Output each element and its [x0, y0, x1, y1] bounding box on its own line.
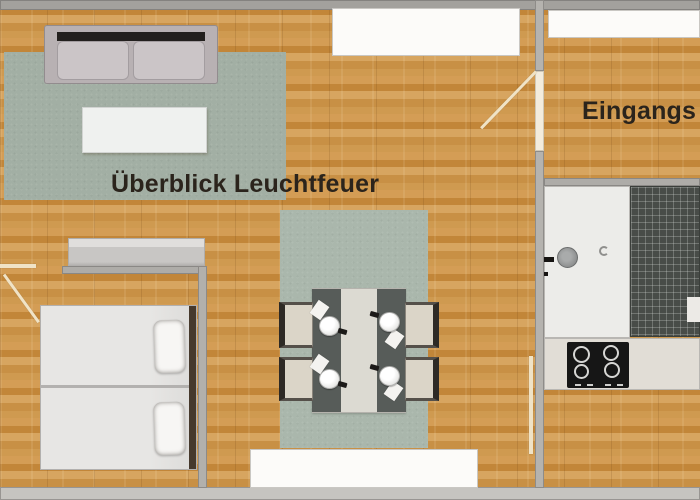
cooktop-knob	[587, 384, 593, 386]
sideboard	[68, 238, 205, 268]
door-threshold-entrance	[535, 71, 544, 151]
burner-icon	[574, 364, 589, 379]
door-leaf-kitchen	[529, 356, 533, 454]
window-top	[332, 8, 520, 56]
cooktop	[567, 342, 629, 388]
plate	[379, 312, 400, 332]
bed-headboard	[189, 306, 196, 469]
sofa	[44, 25, 218, 84]
kitchen-sink	[557, 247, 578, 268]
wall-sleeping-side	[198, 266, 207, 488]
living-room-label: Überblick Leuchtfeuer	[111, 170, 379, 199]
burner-icon	[603, 345, 619, 361]
twin-beds	[40, 305, 197, 470]
wall-bottom	[0, 487, 700, 500]
countertop-notch	[687, 297, 700, 322]
sofa-backrest	[57, 32, 205, 41]
entrance-label: Eingangs	[582, 97, 696, 126]
wall-sleeping-top	[62, 266, 207, 274]
wall-divider-upper	[535, 0, 544, 71]
drain-mark	[599, 246, 609, 256]
door-leaf-sleeping	[0, 264, 36, 268]
sofa-cushion	[133, 41, 205, 80]
burner-icon	[573, 346, 590, 363]
wall-entrance-kitchen	[544, 178, 700, 186]
pillow	[153, 401, 186, 455]
kitchen-sink-counter	[544, 186, 630, 338]
bed-divider	[41, 385, 196, 388]
pillow	[153, 319, 186, 373]
window-entrance	[548, 10, 700, 38]
window-bottom	[250, 449, 478, 488]
plate	[379, 366, 400, 386]
coffee-table	[82, 107, 207, 153]
dining-chair	[279, 302, 313, 348]
plate	[319, 316, 340, 336]
dining-chair	[405, 302, 439, 348]
cooktop-knob	[617, 384, 623, 386]
wall-divider-lower	[535, 151, 544, 488]
floor-plan: Überblick Leuchtfeuer Eingangs	[0, 0, 700, 500]
dining-chair	[405, 357, 439, 401]
burner-icon	[604, 362, 620, 378]
plate	[319, 369, 340, 389]
dining-chair	[279, 357, 313, 401]
cooktop-knob	[575, 384, 581, 386]
sofa-cushion	[57, 41, 129, 80]
cooktop-knob	[605, 384, 611, 386]
